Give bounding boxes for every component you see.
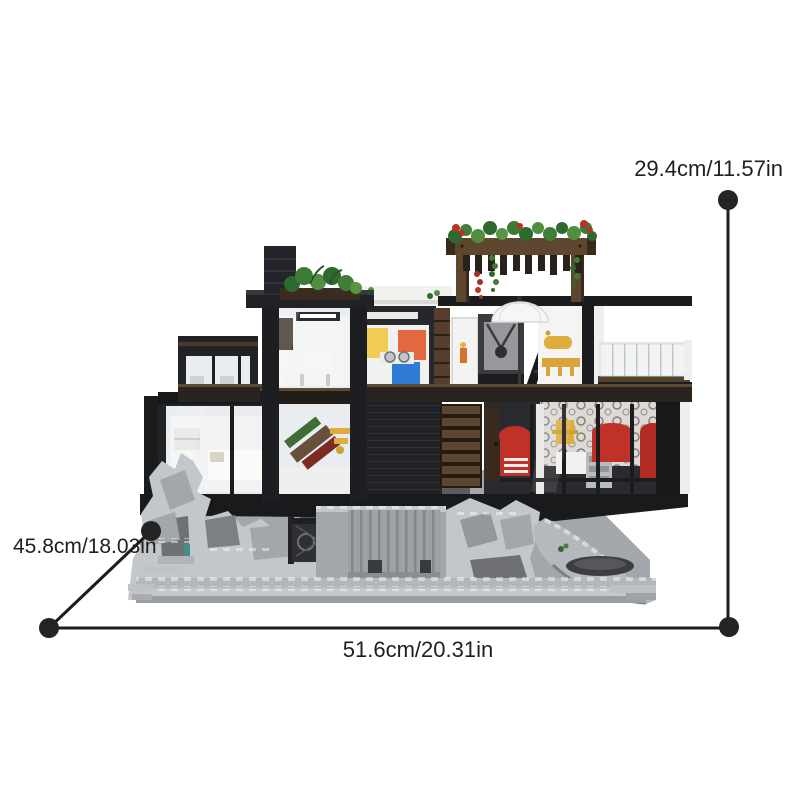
pergola-slats: [463, 253, 582, 275]
slatted-wall: [440, 404, 482, 488]
fireplace-unit: [478, 314, 524, 392]
width-line-left-dot: [39, 618, 59, 638]
height-line-top-dot: [718, 190, 738, 210]
height-dimension-label: 29.4cm/11.57in: [634, 157, 783, 181]
kitchen-window: [360, 306, 436, 392]
baseplates: [128, 576, 656, 603]
product-dimension-image: 29.4cm/11.57in 45.8cm/18.03in 51.6cm/20.…: [0, 0, 800, 800]
depth-dimension-label: 45.8cm/18.03in: [13, 535, 157, 558]
width-dimension-label: 51.6cm/20.31in: [343, 638, 493, 662]
rooftop-garden: [264, 246, 362, 300]
lower-floor: [140, 392, 690, 521]
living-room: [484, 398, 690, 498]
garage-base: [316, 506, 446, 580]
left-wing: [178, 336, 258, 392]
white-door: [452, 318, 478, 392]
model-illustration: [0, 0, 800, 800]
terrace-railing: [598, 340, 692, 380]
corner-dot: [719, 617, 739, 637]
pergola: [446, 220, 597, 302]
